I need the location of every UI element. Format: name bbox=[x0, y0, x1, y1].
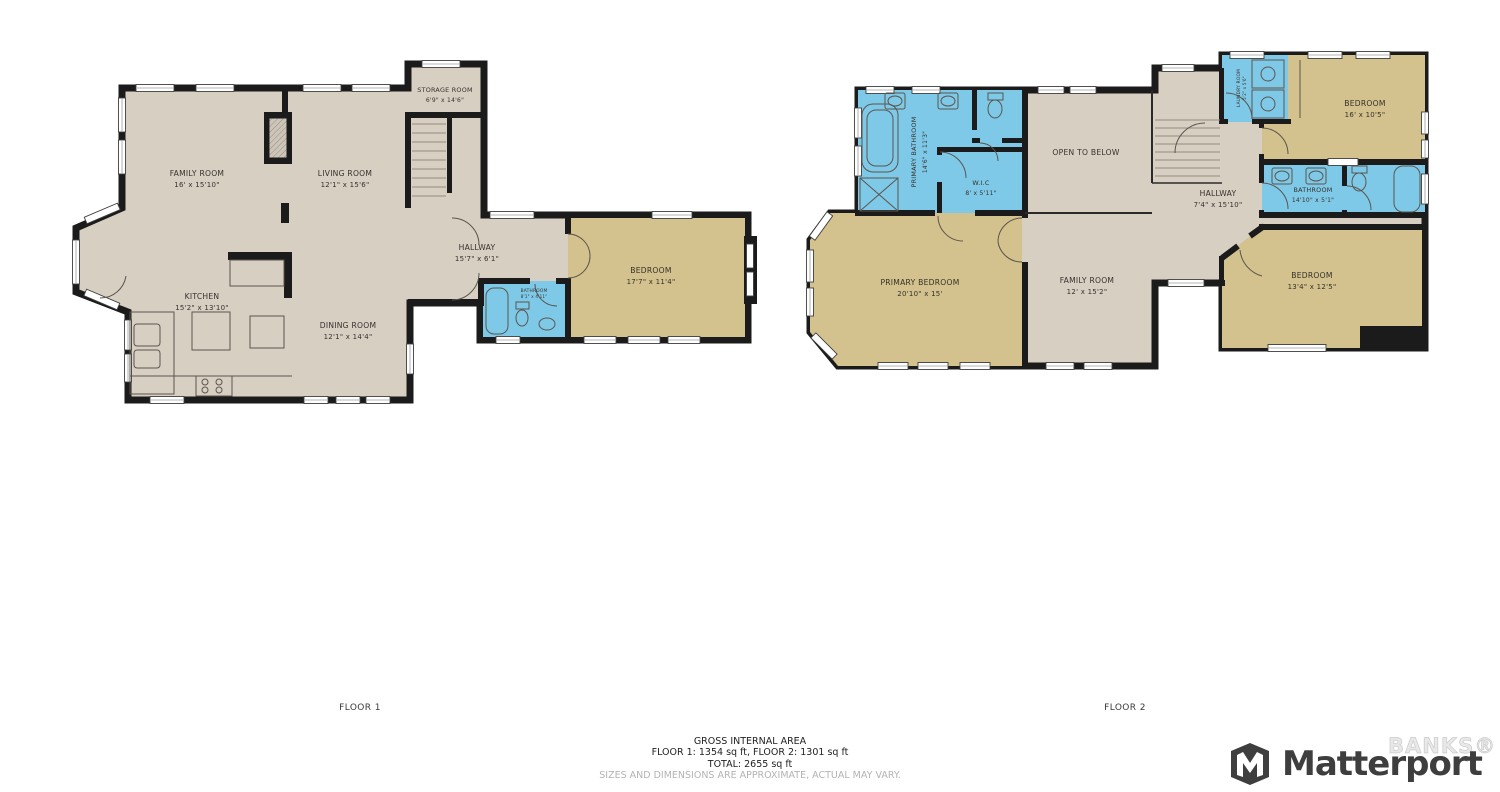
svg-text:8'1" x 4'11": 8'1" x 4'11" bbox=[521, 294, 548, 299]
label-primary-bedroom: PRIMARY BEDROOM bbox=[880, 278, 959, 287]
floorplan-canvas: FAMILY ROOM 16' x 15'10" LIVING ROOM 12'… bbox=[0, 0, 1500, 792]
svg-text:12' x 15'2": 12' x 15'2" bbox=[1067, 288, 1108, 296]
gross-internal-area: GROSS INTERNAL AREA FLOOR 1: 1354 sq ft,… bbox=[500, 736, 1000, 782]
svg-text:13'4" x 12'5": 13'4" x 12'5" bbox=[1288, 283, 1337, 291]
matterport-logo: Matterport bbox=[1227, 741, 1482, 787]
area-total: TOTAL: 2655 sq ft bbox=[500, 759, 1000, 770]
svg-text:17'7" x 11'4": 17'7" x 11'4" bbox=[627, 278, 676, 286]
floor1-plan: FAMILY ROOM 16' x 15'10" LIVING ROOM 12'… bbox=[73, 61, 758, 404]
svg-text:15'2" x 13'10": 15'2" x 13'10" bbox=[175, 304, 229, 312]
floorplan-page: FAMILY ROOM 16' x 15'10" LIVING ROOM 12'… bbox=[0, 0, 1500, 792]
label-wic: W.I.C bbox=[972, 179, 990, 187]
svg-text:6'9" x 14'6": 6'9" x 14'6" bbox=[426, 97, 464, 104]
label-hallway-f2: HALLWAY bbox=[1200, 189, 1237, 198]
label-dining-room: DINING ROOM bbox=[320, 321, 377, 330]
label-primary-bathroom: PRIMARY BATHROOM bbox=[910, 116, 918, 187]
floor2-plan: PRIMARY BATHROOM 14'6" x 11'3" W.I.C 8' … bbox=[807, 52, 1429, 370]
matterport-m-icon bbox=[1227, 741, 1273, 787]
svg-text:14'6" x 11'3": 14'6" x 11'3" bbox=[922, 131, 929, 173]
label-bedroom-br: BEDROOM bbox=[1291, 271, 1332, 280]
svg-text:16' x 15'10": 16' x 15'10" bbox=[174, 181, 219, 189]
floor1-caption: FLOOR 1 bbox=[260, 703, 460, 713]
label-living-room: LIVING ROOM bbox=[318, 169, 372, 178]
area-disclaimer: SIZES AND DIMENSIONS ARE APPROXIMATE, AC… bbox=[500, 770, 1000, 781]
svg-text:15'7" x 6'1": 15'7" x 6'1" bbox=[455, 255, 499, 263]
area-title: GROSS INTERNAL AREA bbox=[500, 736, 1000, 747]
matterport-wordmark: Matterport bbox=[1282, 744, 1482, 784]
label-kitchen: KITCHEN bbox=[185, 292, 220, 301]
label-bathroom-f2: BATHROOM bbox=[1294, 186, 1333, 194]
svg-text:12'1" x 14'4": 12'1" x 14'4" bbox=[324, 333, 373, 341]
label-bedroom-tr: BEDROOM bbox=[1344, 99, 1385, 108]
svg-text:20'10" x 15': 20'10" x 15' bbox=[897, 290, 942, 298]
label-family-room: FAMILY ROOM bbox=[170, 169, 224, 178]
svg-text:12'1" x 15'6": 12'1" x 15'6" bbox=[321, 181, 370, 189]
svg-text:14'10" x 5'1": 14'10" x 5'1" bbox=[1292, 197, 1334, 204]
svg-text:7'4" x 15'10": 7'4" x 15'10" bbox=[1194, 201, 1243, 209]
label-open-to-below: OPEN TO BELOW bbox=[1052, 148, 1119, 157]
svg-text:16' x 10'5": 16' x 10'5" bbox=[1345, 111, 1386, 119]
label-bedroom-f1: BEDROOM bbox=[630, 266, 671, 275]
floor2-caption: FLOOR 2 bbox=[1025, 703, 1225, 713]
label-storage-room: STORAGE ROOM bbox=[417, 86, 472, 94]
label-family-room-f2: FAMILY ROOM bbox=[1060, 276, 1114, 285]
area-per-floor: FLOOR 1: 1354 sq ft, FLOOR 2: 1301 sq ft bbox=[500, 747, 1000, 758]
svg-text:8' x 5'11": 8' x 5'11" bbox=[965, 190, 996, 197]
svg-text:5'2" x 5'6": 5'2" x 5'6" bbox=[1242, 76, 1247, 100]
fireplace bbox=[269, 118, 287, 158]
label-hallway-f1: HALLWAY bbox=[459, 243, 496, 252]
